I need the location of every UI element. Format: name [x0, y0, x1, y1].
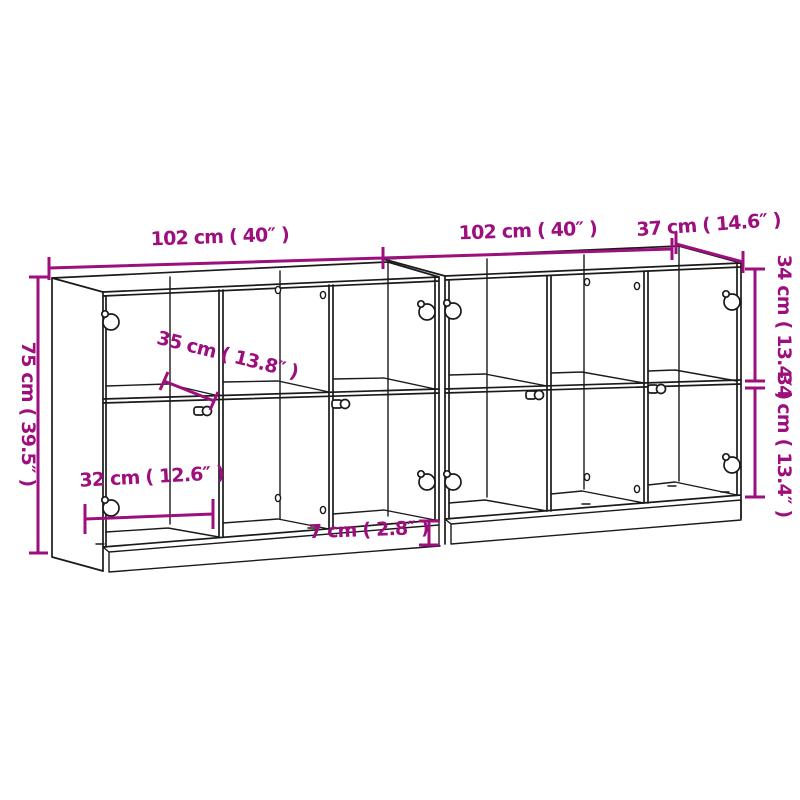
product-dimension-diagram: 102 cm ( 40″ ) 102 cm ( 40″ ) 37 cm ( 14…: [0, 0, 800, 800]
door-knob-ear-icon: [102, 311, 108, 317]
shelf-pin-icon: [332, 400, 350, 409]
left-cabinet-side-panel: [52, 278, 103, 571]
door-knob-ear-icon: [418, 301, 424, 307]
shelf-pin-icon: [526, 391, 544, 400]
right-cabinet-outline: [383, 246, 741, 544]
right-cabinet-front-frame: [445, 263, 741, 544]
peg-hole-icon: [320, 291, 325, 298]
door-knob-ear-icon: [444, 471, 450, 477]
peg-hole-icon: [275, 494, 280, 501]
dim-inner-compartment-width-label: 32 cm ( 12.6″ ): [79, 462, 225, 492]
diagram-canvas: 102 cm ( 40″ ) 102 cm ( 40″ ) 37 cm ( 14…: [0, 0, 800, 800]
door-knob-ear-icon: [418, 471, 424, 477]
dim-overall-height: 75 cm ( 39.5″ ): [17, 277, 48, 553]
dim-lower-section-height: 34 cm ( 13.4″ ): [745, 373, 795, 518]
door-knob-ear-icon: [723, 454, 729, 460]
dim-depth: 37 cm ( 14.6″ ): [636, 209, 782, 273]
right-cabinet-shelf: [445, 370, 741, 393]
dim-right-unit-width-label: 102 cm ( 40″ ): [458, 218, 597, 245]
dim-inner-compartment-width: 32 cm ( 12.6″ ): [79, 462, 225, 534]
dim-shelf-depth-label: 35 cm ( 13.8″ ): [155, 327, 301, 383]
peg-hole-icon: [275, 286, 280, 293]
dim-lower-section-height-label: 34 cm ( 13.4″ ): [773, 373, 795, 518]
dim-plinth-height: 7 cm ( 2.8″ ): [309, 517, 439, 545]
dim-left-unit-width-label: 102 cm ( 40″ ): [150, 224, 289, 251]
right-shelf-front-edge: [445, 380, 741, 393]
door-knob-ear-icon: [723, 291, 729, 297]
shelf-pin-icon: [648, 385, 666, 394]
right-cabinet-dividers: [547, 271, 648, 511]
dim-right-unit-width: 102 cm ( 40″ ): [383, 218, 672, 260]
peg-hole-icon: [634, 485, 639, 492]
peg-hole-icon: [320, 506, 325, 513]
dim-depth-label: 37 cm ( 14.6″ ): [636, 209, 782, 241]
peg-hole-icon: [634, 282, 639, 289]
shelf-pin-icon: [194, 407, 212, 416]
right-shelf-top-face: [449, 370, 737, 386]
peg-hole-icon: [584, 473, 589, 480]
dim-left-unit-width: 102 cm ( 40″ ): [49, 224, 383, 280]
dim-plinth-height-label: 7 cm ( 2.8″ ): [309, 517, 430, 543]
dim-overall-height-label: 75 cm ( 39.5″ ): [17, 342, 39, 487]
door-knob-ear-icon: [102, 497, 108, 503]
peg-hole-icon: [584, 278, 589, 285]
door-knob-ear-icon: [444, 300, 450, 306]
